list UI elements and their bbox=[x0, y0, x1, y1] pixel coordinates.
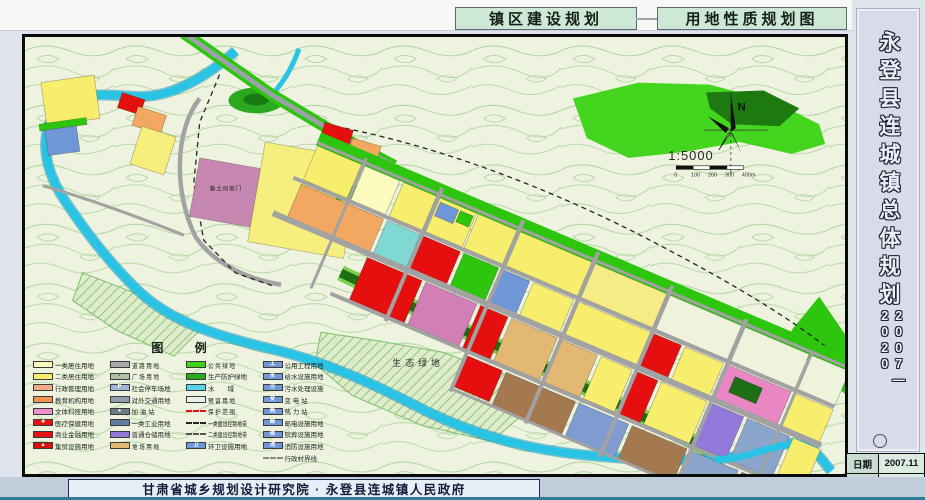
north-label: N bbox=[738, 101, 746, 113]
seal-circle bbox=[873, 434, 887, 448]
legend-item: 工 公用工程用地 bbox=[263, 359, 340, 371]
legend-swatch: 污 bbox=[263, 384, 283, 391]
legend-item-label: 殡葬设施用地 bbox=[285, 429, 324, 439]
legend-swatch-mark: 工 bbox=[270, 362, 276, 367]
legend-item-label: 一类建设控制地带 bbox=[208, 418, 247, 428]
legend-swatch bbox=[110, 419, 130, 426]
legend-item: 生产防护绿地 bbox=[186, 371, 263, 383]
legend-item: 殡 殡葬设施用地 bbox=[263, 429, 340, 441]
legend-item: 公 共 绿 地 bbox=[186, 359, 263, 371]
legend-swatch bbox=[33, 384, 53, 391]
legend-item-label: 污水处理设施 bbox=[285, 383, 324, 393]
scale-tick-label: 300 bbox=[725, 173, 734, 179]
legend-item-label: 社会停车场地 bbox=[132, 383, 171, 393]
sheet-title-left: 镇区建设规划 bbox=[455, 7, 637, 30]
title-connector bbox=[636, 18, 658, 20]
legend-swatch bbox=[186, 373, 206, 380]
plan-period-vertical: 2007—2020 bbox=[878, 309, 906, 451]
legend-item: P 社会停车场地 bbox=[110, 382, 187, 394]
legend-item: 教育机构用地 bbox=[33, 394, 110, 406]
credit-box: 甘肃省城乡规划设计研究院 · 永登县连城镇人民政府 bbox=[68, 479, 540, 498]
legend-item: 行政村界线 bbox=[263, 452, 340, 464]
legend-swatch bbox=[186, 384, 206, 391]
legend-swatch bbox=[186, 433, 206, 435]
legend-title: 图 例 bbox=[33, 339, 339, 356]
legend-item: 卫 环卫设施用地 bbox=[186, 440, 263, 452]
legend-swatch bbox=[33, 431, 53, 438]
legend-swatch-mark: 变 bbox=[270, 397, 276, 402]
legend-item: 二类建设控制地带 bbox=[186, 429, 263, 441]
scale-tick-label: 100 bbox=[691, 173, 700, 179]
map-label: 生态绿地 bbox=[392, 357, 444, 368]
legend-swatch: 工 bbox=[263, 361, 283, 368]
legend-swatch-mark: ✚ bbox=[41, 420, 46, 425]
legend-swatch bbox=[33, 373, 53, 380]
legend-item: 一类建设控制地带 bbox=[186, 417, 263, 429]
legend-item: 行政管理用地 bbox=[33, 382, 110, 394]
legend-swatch-mark: ● bbox=[118, 409, 121, 414]
legend-column: 工 公用工程用地 水 给水设施用地 污 污水处理设施 变 变 电 站 热 热 力… bbox=[263, 359, 340, 463]
legend-item-label: 二类居住用地 bbox=[55, 371, 94, 381]
legend-item: 文体科技用地 bbox=[33, 405, 110, 417]
legend-swatch bbox=[33, 396, 53, 403]
legend-item-label: 公用工程用地 bbox=[285, 360, 324, 370]
legend-swatch: 消 bbox=[263, 442, 283, 449]
legend-item-label: 热 力 站 bbox=[285, 406, 308, 416]
legend-item-label: 消防设施用地 bbox=[285, 441, 324, 451]
legend-swatch-mark: 热 bbox=[270, 409, 276, 414]
scale-bar-segment bbox=[727, 166, 744, 169]
legend-columns: 一类居住用地 二类居住用地 行政管理用地 教育机构用地 文体科技用地 ✚ 医疗保… bbox=[33, 359, 339, 463]
legend-swatch bbox=[186, 361, 206, 368]
legend-item: 水 域 bbox=[186, 382, 263, 394]
legend-swatch: 邮 bbox=[263, 419, 283, 426]
legend-swatch: ▪ bbox=[110, 373, 130, 380]
legend-item: ✚ 医疗保健用地 bbox=[33, 417, 110, 429]
legend-item-label: 一类居住用地 bbox=[55, 360, 94, 370]
legend-item: 变 变 电 站 bbox=[263, 394, 340, 406]
legend-column: 公 共 绿 地 生产防护绿地 水 域 预 留 用 地 保 护 范 围 一类建设控… bbox=[186, 359, 263, 463]
legend-item-label: 保 护 范 围 bbox=[208, 406, 235, 416]
legend-swatch-mark: ▪ bbox=[119, 374, 121, 379]
legend-swatch-mark: 水 bbox=[270, 374, 276, 379]
legend-item: 堆 场 用 地 bbox=[110, 440, 187, 452]
legend-item-label: 行政村界线 bbox=[285, 453, 318, 463]
legend-swatch bbox=[33, 408, 53, 415]
legend-item: 道 路 用 地 bbox=[110, 359, 187, 371]
legend-item-label: 预 留 用 地 bbox=[208, 395, 235, 405]
legend-swatch: ● bbox=[110, 408, 130, 415]
legend-item: ● 加 油 站 bbox=[110, 405, 187, 417]
scale-bar-segment bbox=[710, 166, 727, 169]
legend-item-label: 堆 场 用 地 bbox=[132, 441, 159, 451]
legend-swatch: ✚ bbox=[33, 419, 53, 426]
title-sidebar: 永登县连城镇总体规划 2007—2020 bbox=[856, 8, 920, 452]
legend-swatch bbox=[263, 457, 283, 459]
legend-item: 对外交通用地 bbox=[110, 394, 187, 406]
legend-item: 二类居住用地 bbox=[33, 371, 110, 383]
map-frame: N 1:5000 0100200300400m 鲁土司衙门生态绿地 图 例 一类… bbox=[22, 34, 848, 477]
legend-item: ▪ 广 场 用 地 bbox=[110, 371, 187, 383]
legend-item-label: 广 场 用 地 bbox=[132, 371, 159, 381]
legend-item-label: 道 路 用 地 bbox=[132, 360, 159, 370]
legend-item-label: 生产防护绿地 bbox=[208, 371, 247, 381]
legend-item-label: 商业金融用地 bbox=[55, 429, 94, 439]
scale-tick-label: 200 bbox=[708, 173, 717, 179]
legend-swatch: ▲ bbox=[33, 442, 53, 449]
legend-item-label: 邮电设施用地 bbox=[285, 418, 324, 428]
scale-tick-label: 0 bbox=[674, 173, 677, 179]
legend-item: 商业金融用地 bbox=[33, 429, 110, 441]
legend-item-label: 对外交通用地 bbox=[132, 395, 171, 405]
legend-item-label: 加 油 站 bbox=[132, 406, 155, 416]
legend-swatch: P bbox=[110, 384, 130, 391]
legend-swatch-mark: 消 bbox=[270, 443, 276, 448]
parcel bbox=[41, 75, 100, 126]
date-label: 日期 bbox=[847, 454, 879, 473]
legend-swatch bbox=[110, 396, 130, 403]
parcel bbox=[189, 158, 262, 228]
date-row: 日期 2007.11 bbox=[847, 454, 924, 474]
legend-swatch: 变 bbox=[263, 396, 283, 403]
legend: 图 例 一类居住用地 二类居住用地 行政管理用地 教育机构用地 文体科技用地 ✚… bbox=[33, 339, 339, 475]
legend-item-label: 医疗保健用地 bbox=[55, 418, 94, 428]
scale-bar-segment bbox=[693, 166, 710, 169]
parcel bbox=[45, 126, 80, 156]
legend-item-label: 给水设施用地 bbox=[285, 371, 324, 381]
legend-item: 水 给水设施用地 bbox=[263, 371, 340, 383]
legend-item-label: 环卫设施用地 bbox=[208, 441, 247, 451]
top-strip: 镇区建设规划 用地性质规划图 bbox=[0, 0, 852, 31]
legend-swatch bbox=[110, 361, 130, 368]
legend-swatch bbox=[110, 442, 130, 449]
scale-text: 1:5000 bbox=[668, 148, 713, 163]
scale-bar-segment bbox=[676, 166, 693, 169]
legend-column: 道 路 用 地 ▪ 广 场 用 地 P 社会停车场地 对外交通用地 ● 加 油 … bbox=[110, 359, 187, 463]
legend-item-label: 集贸设施用地 bbox=[55, 441, 94, 451]
plan-sheet: 镇区建设规划 用地性质规划图 bbox=[0, 0, 925, 500]
legend-swatch-mark: 卫 bbox=[193, 443, 199, 448]
legend-swatch bbox=[186, 410, 206, 412]
legend-swatch bbox=[186, 396, 206, 403]
legend-item: 预 留 用 地 bbox=[186, 394, 263, 406]
legend-item-label: 教育机构用地 bbox=[55, 395, 94, 405]
legend-column: 一类居住用地 二类居住用地 行政管理用地 教育机构用地 文体科技用地 ✚ 医疗保… bbox=[33, 359, 110, 463]
legend-item: 消 消防设施用地 bbox=[263, 440, 340, 452]
legend-swatch-mark: 邮 bbox=[270, 420, 276, 425]
legend-item: 热 热 力 站 bbox=[263, 405, 340, 417]
legend-swatch-mark: ▲ bbox=[40, 443, 45, 448]
sheet-title-right: 用地性质规划图 bbox=[657, 7, 847, 30]
legend-item: 保 护 范 围 bbox=[186, 405, 263, 417]
date-value: 2007.11 bbox=[879, 454, 924, 473]
legend-swatch: 卫 bbox=[186, 442, 206, 449]
legend-item: 一类居住用地 bbox=[33, 359, 110, 371]
legend-item: 污 污水处理设施 bbox=[263, 382, 340, 394]
scale-tick-label: 400m bbox=[742, 173, 756, 179]
plan-title-vertical: 永登县连城镇总体规划 bbox=[873, 31, 903, 311]
legend-item-label: 行政管理用地 bbox=[55, 383, 94, 393]
legend-item-label: 公 共 绿 地 bbox=[208, 360, 235, 370]
legend-swatch bbox=[186, 422, 206, 424]
legend-item-label: 一类工业用地 bbox=[132, 418, 171, 428]
map-label: 鲁土司衙门 bbox=[210, 185, 242, 193]
legend-item-label: 二类建设控制地带 bbox=[208, 429, 247, 439]
legend-swatch-mark: 污 bbox=[270, 385, 276, 390]
legend-item: 一类工业用地 bbox=[110, 417, 187, 429]
legend-swatch bbox=[33, 361, 53, 368]
legend-swatch-mark: P bbox=[118, 385, 122, 390]
legend-item: 邮 邮电设施用地 bbox=[263, 417, 340, 429]
legend-item: 普通仓储用地 bbox=[110, 429, 187, 441]
legend-item-label: 文体科技用地 bbox=[55, 406, 94, 416]
legend-swatch-mark: 殡 bbox=[270, 432, 276, 437]
legend-item-label: 变 电 站 bbox=[285, 395, 308, 405]
legend-item-label: 普通仓储用地 bbox=[132, 429, 171, 439]
legend-swatch: 殡 bbox=[263, 431, 283, 438]
legend-item: ▲ 集贸设施用地 bbox=[33, 440, 110, 452]
legend-swatch bbox=[110, 431, 130, 438]
legend-swatch: 水 bbox=[263, 373, 283, 380]
legend-item-label: 水 域 bbox=[208, 383, 234, 393]
legend-swatch: 热 bbox=[263, 408, 283, 415]
